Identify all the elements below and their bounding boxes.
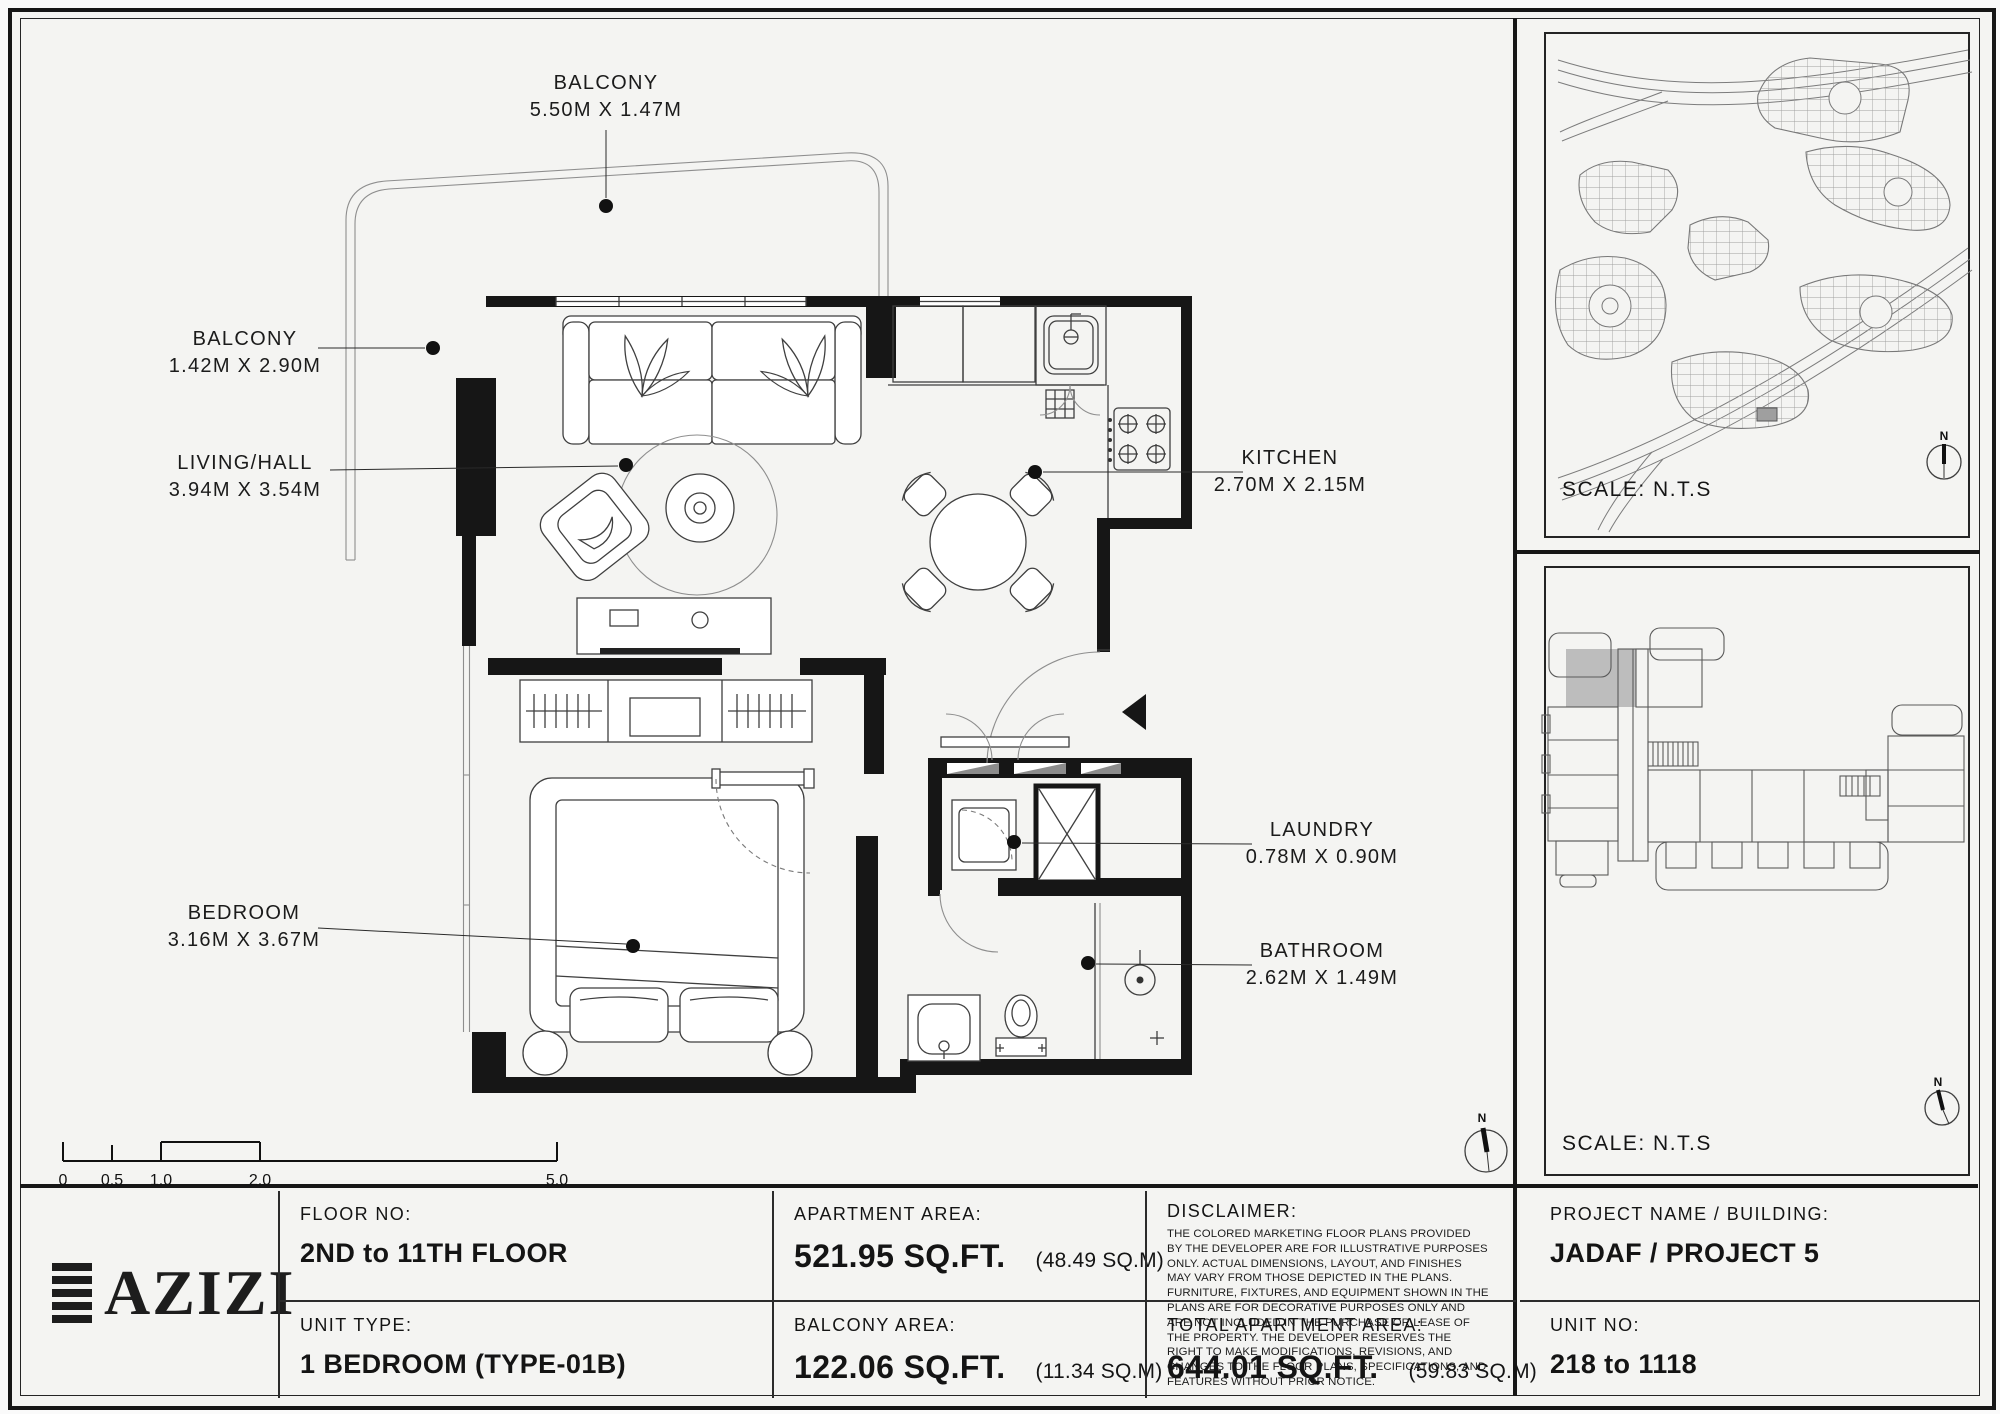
scale-tick-2: 2.0 <box>249 1172 271 1189</box>
scale-tick-5: 5.0 <box>546 1172 568 1189</box>
logo-cell: AZIZI <box>8 1191 278 1398</box>
room-name: BEDROOM <box>168 900 321 927</box>
room-dims: 5.50M X 1.47M <box>530 97 683 124</box>
label-bedroom: BEDROOM 3.16M X 3.67M <box>168 900 321 954</box>
unit-type-cell: UNIT TYPE: 1 BEDROOM (TYPE-01B) <box>278 1300 772 1398</box>
room-dims: 1.42M X 2.90M <box>169 353 322 380</box>
floor-no-cell: FLOOR NO: 2ND to 11TH FLOOR <box>278 1191 772 1300</box>
apartment-area-cell: APARTMENT AREA: 521.95 SQ.FT.(48.49 SQ.M… <box>772 1191 1145 1300</box>
duct-shaft <box>1036 786 1098 882</box>
area-sqm: (11.34 SQ.M) <box>1036 1360 1163 1383</box>
area-sqft: 122.06 SQ.FT. <box>794 1349 1006 1385</box>
wardrobe <box>520 680 812 742</box>
compass-icon: N <box>1465 1111 1507 1172</box>
room-dims: 2.62M X 1.49M <box>1246 965 1399 992</box>
total-area-cell: TOTAL APARTMENT AREA: 644.01 SQ.FT.(59.8… <box>1145 1300 1516 1398</box>
stove <box>1108 408 1170 470</box>
compass-n-label: N <box>1934 1075 1943 1089</box>
scale-tick-05: 0.5 <box>101 1172 123 1189</box>
area-sqft: 521.95 SQ.FT. <box>794 1238 1006 1274</box>
room-dims: 2.70M X 2.15M <box>1214 472 1367 499</box>
label-living-hall: LIVING/HALL 3.94M X 3.54M <box>169 450 322 504</box>
scale-tick-0: 0 <box>59 1172 68 1189</box>
compass-n-label: N <box>1478 1111 1487 1125</box>
room-dims: 3.94M X 3.54M <box>169 477 322 504</box>
dining-set <box>897 467 1058 616</box>
site-map-scale-text: SCALE: N.T.S <box>1562 478 1712 502</box>
total-area-label: TOTAL APARTMENT AREA: <box>1167 1315 1516 1336</box>
floorplan-sheet: 0 0.5 1.0 2.0 5.0 N <box>0 0 2000 1414</box>
balcony-area-cell: BALCONY AREA: 122.06 SQ.FT.(11.34 SQ.M) <box>772 1300 1145 1398</box>
key-compass-icon: N <box>1925 1075 1959 1125</box>
scale-bar: 0 0.5 1.0 2.0 5.0 <box>59 1142 569 1189</box>
entry-door <box>987 650 1146 765</box>
room-name: LAUNDRY <box>1246 817 1399 844</box>
site-map-highlighted-plot <box>1757 408 1777 421</box>
balcony-area-label: BALCONY AREA: <box>794 1315 1145 1336</box>
floor-no-label: FLOOR NO: <box>300 1204 772 1225</box>
unit-no-cell: UNIT NO: 218 to 1118 <box>1520 1300 1980 1398</box>
room-dims: 0.78M X 0.90M <box>1246 844 1399 871</box>
azizi-logo-bars-icon <box>52 1263 92 1324</box>
disclaimer-cell: DISCLAIMER: THE COLORED MARKETING FLOOR … <box>1145 1191 1516 1300</box>
total-area-value: 644.01 SQ.FT.(59.83 SQ.M) <box>1167 1349 1516 1386</box>
site-map-drawing <box>1556 50 1973 532</box>
unit-no-value: 218 to 1118 <box>1550 1349 1980 1380</box>
compass-n-label: N <box>1940 429 1949 443</box>
room-name: BALCONY <box>530 70 683 97</box>
key-plan-scale-text: SCALE: N.T.S <box>1562 1132 1712 1156</box>
unit-type-label: UNIT TYPE: <box>300 1315 772 1336</box>
bathroom-fixtures <box>908 894 1164 1061</box>
label-bathroom: BATHROOM 2.62M X 1.49M <box>1246 938 1399 992</box>
room-name: BALCONY <box>169 326 322 353</box>
apartment-area-value: 521.95 SQ.FT.(48.49 SQ.M) <box>794 1238 1145 1275</box>
sofa <box>563 316 861 444</box>
room-dims: 3.16M X 3.67M <box>168 927 321 954</box>
label-laundry: LAUNDRY 0.78M X 0.90M <box>1246 817 1399 871</box>
balcony-area-value: 122.06 SQ.FT.(11.34 SQ.M) <box>794 1349 1145 1386</box>
label-kitchen: KITCHEN 2.70M X 2.15M <box>1214 445 1367 499</box>
project-name-value: JADAF / PROJECT 5 <box>1550 1238 1980 1269</box>
room-name: KITCHEN <box>1214 445 1367 472</box>
unit-no-label: UNIT NO: <box>1550 1315 1980 1336</box>
room-name: BATHROOM <box>1246 938 1399 965</box>
azizi-logo: AZIZI <box>52 1256 278 1330</box>
bed <box>523 778 812 1075</box>
room-name: LIVING/HALL <box>169 450 322 477</box>
unit-type-value: 1 BEDROOM (TYPE-01B) <box>300 1349 772 1380</box>
floor-no-value: 2ND to 11TH FLOOR <box>300 1238 772 1269</box>
tv-console <box>577 598 771 654</box>
key-plan-drawing <box>1542 628 1964 890</box>
key-plan-highlighted-unit <box>1566 649 1636 707</box>
label-balcony-top: BALCONY 5.50M X 1.47M <box>530 70 683 124</box>
label-balcony-left: BALCONY 1.42M X 2.90M <box>169 326 322 380</box>
disclaimer-label: DISCLAIMER: <box>1167 1201 1516 1222</box>
project-name-cell: PROJECT NAME / BUILDING: JADAF / PROJECT… <box>1520 1191 1980 1300</box>
project-name-label: PROJECT NAME / BUILDING: <box>1550 1204 1980 1225</box>
apartment-area-label: APARTMENT AREA: <box>794 1204 1145 1225</box>
area-sqft: 644.01 SQ.FT. <box>1167 1349 1379 1385</box>
scale-tick-1: 1.0 <box>150 1172 172 1189</box>
entry-arrow-icon <box>1122 694 1146 730</box>
site-compass-icon: N <box>1927 429 1961 479</box>
azizi-logo-text: AZIZI <box>104 1256 295 1330</box>
area-sqm: (59.83 SQ.M) <box>1409 1360 1537 1383</box>
